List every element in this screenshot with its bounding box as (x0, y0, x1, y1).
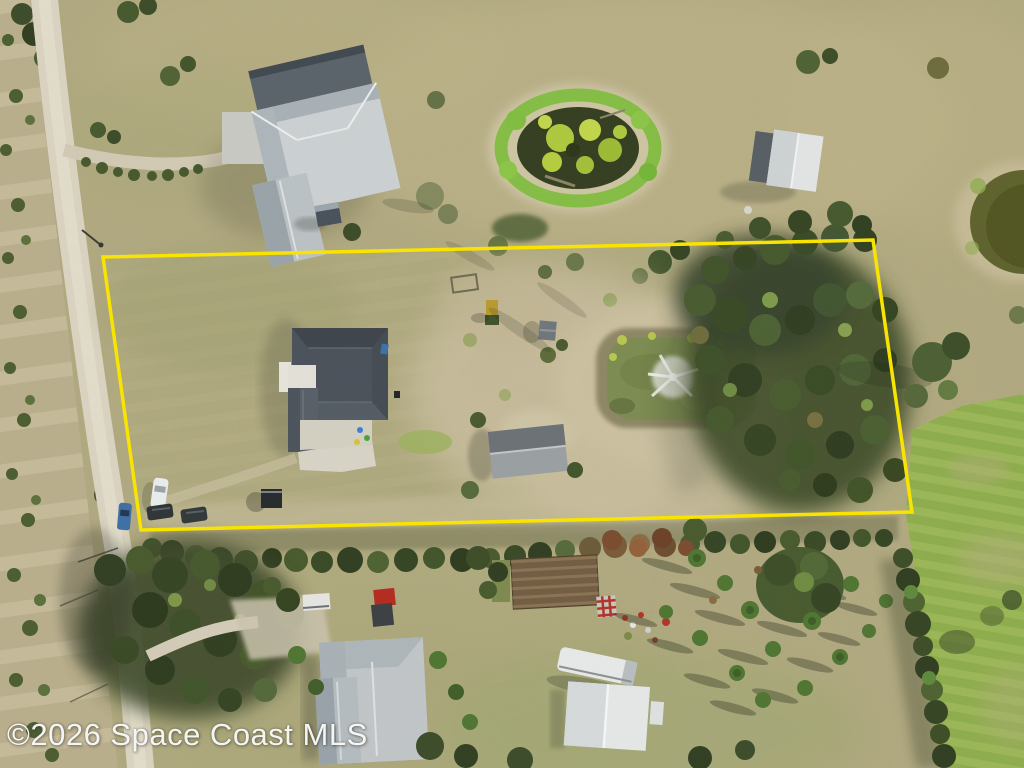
mls-watermark: ©2026 Space Coast MLS (7, 717, 368, 753)
aerial-photo-canvas (0, 0, 1024, 768)
aerial-photo: ©2026 Space Coast MLS (0, 0, 1024, 768)
photo-grain (0, 0, 1024, 768)
